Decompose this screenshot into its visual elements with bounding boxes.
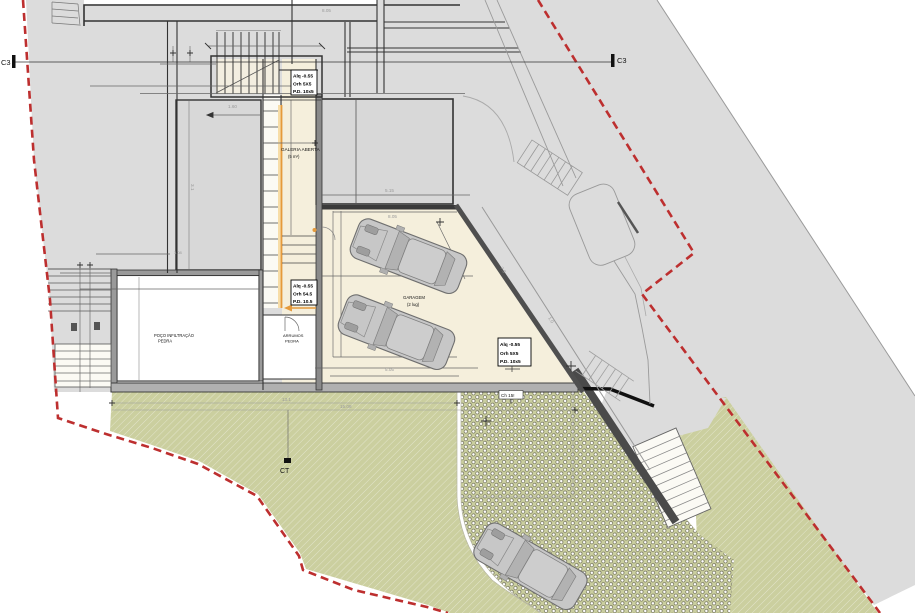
svg-text:P.D. 10x5: P.D. 10x5	[500, 359, 521, 365]
svg-text:3.08: 3.08	[174, 250, 183, 255]
svg-text:8.05: 8.05	[388, 214, 397, 219]
svg-text:GARAGEM: GARAGEM	[403, 295, 425, 300]
svg-text:Alq -0.55: Alq -0.55	[500, 342, 520, 348]
svg-text:3.1: 3.1	[190, 184, 195, 191]
svg-text:PEDRA: PEDRA	[285, 339, 299, 344]
svg-text:5.15: 5.15	[385, 188, 394, 193]
svg-text:1.60: 1.60	[228, 104, 237, 109]
svg-text:(5 m²): (5 m²)	[288, 154, 300, 159]
svg-text:Alq -0.55: Alq -0.55	[293, 74, 313, 80]
svg-text:ARRUMOS: ARRUMOS	[283, 333, 304, 338]
svg-text:P.D. 10x5: P.D. 10x5	[293, 89, 314, 95]
svg-text:CT: CT	[280, 468, 290, 475]
svg-text:POÇO INFILTRAÇÃO: POÇO INFILTRAÇÃO	[154, 333, 194, 338]
svg-text:Alq -0.55: Alq -0.55	[293, 284, 313, 290]
svg-text:15.08: 15.08	[340, 404, 352, 409]
svg-text:C3: C3	[1, 58, 11, 67]
svg-text:8.05: 8.05	[322, 8, 331, 13]
svg-text:Ch 15!: Ch 15!	[501, 393, 515, 398]
svg-text:Orh 5X5: Orh 5X5	[293, 82, 312, 88]
svg-text:13.1: 13.1	[282, 397, 291, 402]
svg-text:Orh 5X5: Orh 5X5	[500, 351, 519, 357]
svg-text:Orh 54.5: Orh 54.5	[293, 292, 313, 298]
svg-text:5.05: 5.05	[385, 367, 394, 372]
svg-text:(2 lug): (2 lug)	[407, 302, 420, 307]
svg-text:C3: C3	[617, 56, 627, 65]
svg-text:P.D. 10.5: P.D. 10.5	[293, 299, 313, 305]
svg-text:GALERIA ABERTA: GALERIA ABERTA	[281, 147, 321, 152]
svg-text:PEDRA: PEDRA	[158, 339, 172, 344]
